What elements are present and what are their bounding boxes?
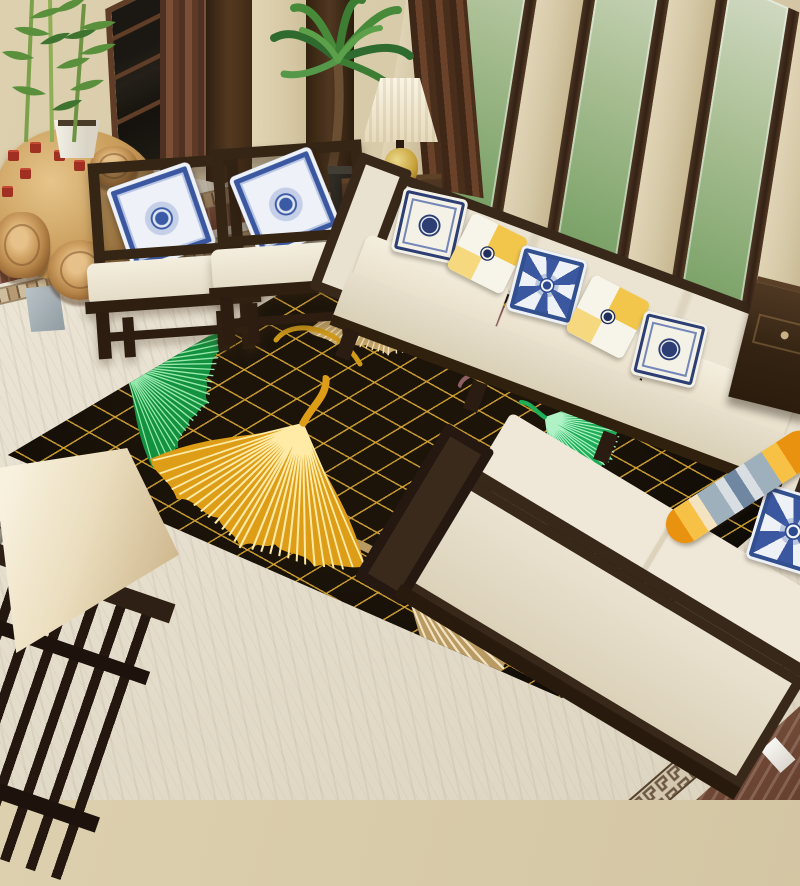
- drawer: [752, 314, 800, 358]
- drawer-knob: [780, 330, 790, 340]
- red-tea-cup: [20, 168, 31, 179]
- red-tea-cup: [2, 186, 13, 197]
- sofa-leg: [335, 328, 360, 361]
- sofa-leg: [593, 431, 618, 464]
- living-room-scene: [0, 0, 800, 800]
- stump-stool: [0, 212, 50, 278]
- bamboo-plant: [0, 0, 130, 144]
- railing-bottom-rail: [0, 755, 100, 833]
- red-tea-cup: [8, 150, 19, 161]
